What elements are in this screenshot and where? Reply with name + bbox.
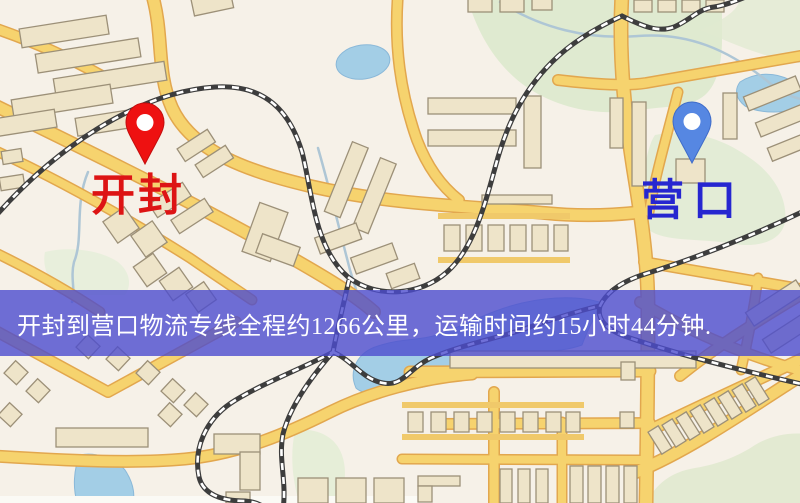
map-canvas — [0, 0, 800, 503]
info-banner: 开封到营口物流专线全程约1266公里，运输时间约15小时44分钟. — [0, 290, 800, 356]
origin-label: 开封 — [91, 174, 185, 218]
destination-pin-icon — [669, 99, 715, 169]
destination-label: 营口 — [641, 180, 745, 223]
map-screenshot: 开封 营口 开封到营口物流专线全程约1266公里，运输时间约15小时44分钟. — [0, 0, 800, 503]
banner-text: 开封到营口物流专线全程约1266公里，运输时间约15小时44分钟. — [17, 306, 712, 341]
origin-pin-icon — [122, 100, 168, 170]
